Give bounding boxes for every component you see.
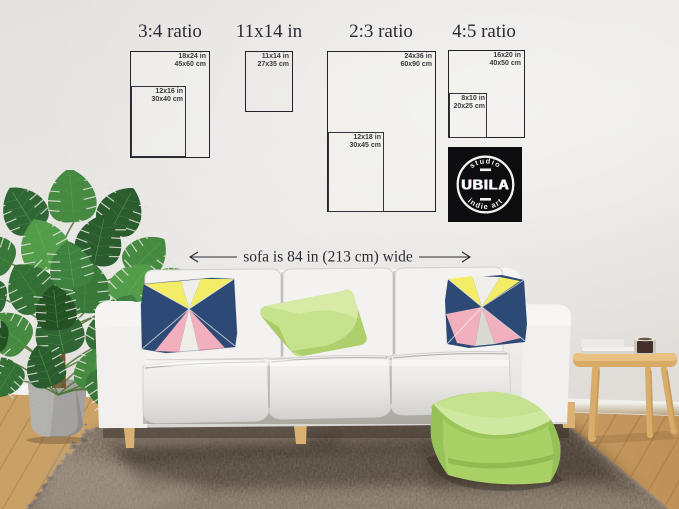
svg-text:UBILA: UBILA xyxy=(461,178,509,194)
